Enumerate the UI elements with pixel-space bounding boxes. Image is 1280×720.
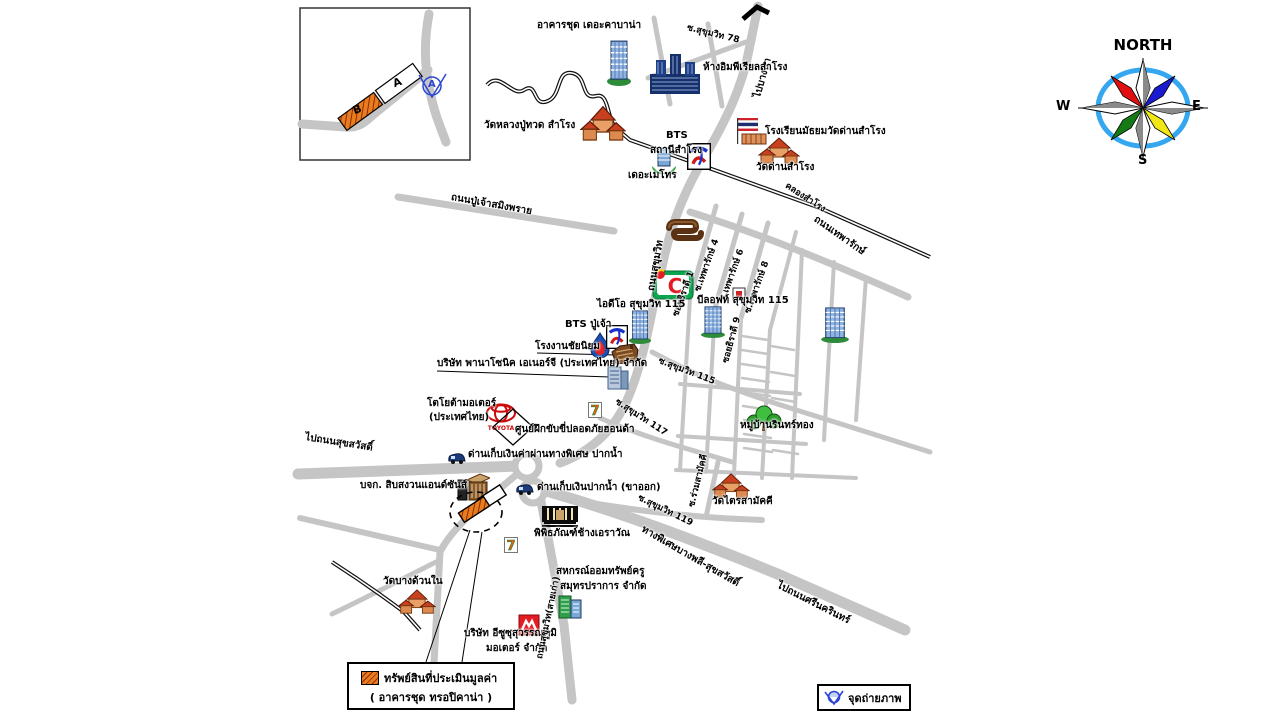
canal-southwest [332, 562, 420, 630]
compass-north-label: NORTH [1108, 36, 1178, 54]
photo-point-icon [823, 689, 845, 707]
inset-camera-label: A [428, 79, 436, 90]
compass-east-label: E [1192, 99, 1201, 114]
photo-point-label: จุดถ่ายภาพ [848, 689, 902, 707]
compass-south-label: S [1138, 153, 1147, 168]
legend-subtitle: ( อาคารชุด ทรอปิคาน่า ) [349, 688, 513, 706]
map-page: CTOYOTA77 อาคารชุด เดอะคาบาน่าซ.สุขุมวิท… [0, 0, 1280, 720]
roundabout-north [515, 454, 539, 478]
legend-box: ทรัพย์สินที่ประเมินมูลค่า ( อาคารชุด ทรอ… [347, 662, 515, 710]
compass-west-label: W [1056, 99, 1070, 114]
road-wide [298, 466, 905, 630]
legend-hatch-swatch [361, 671, 379, 685]
photo-point-box: จุดถ่ายภาพ [817, 684, 911, 711]
compass-rose [1078, 58, 1208, 160]
inset-map [300, 8, 470, 160]
map-graphics [0, 0, 1280, 720]
roundabout-south [522, 481, 544, 503]
legend-title: ทรัพย์สินที่ประเมินมูลค่า [384, 669, 497, 687]
road-sukhumvit-main [540, 6, 758, 700]
